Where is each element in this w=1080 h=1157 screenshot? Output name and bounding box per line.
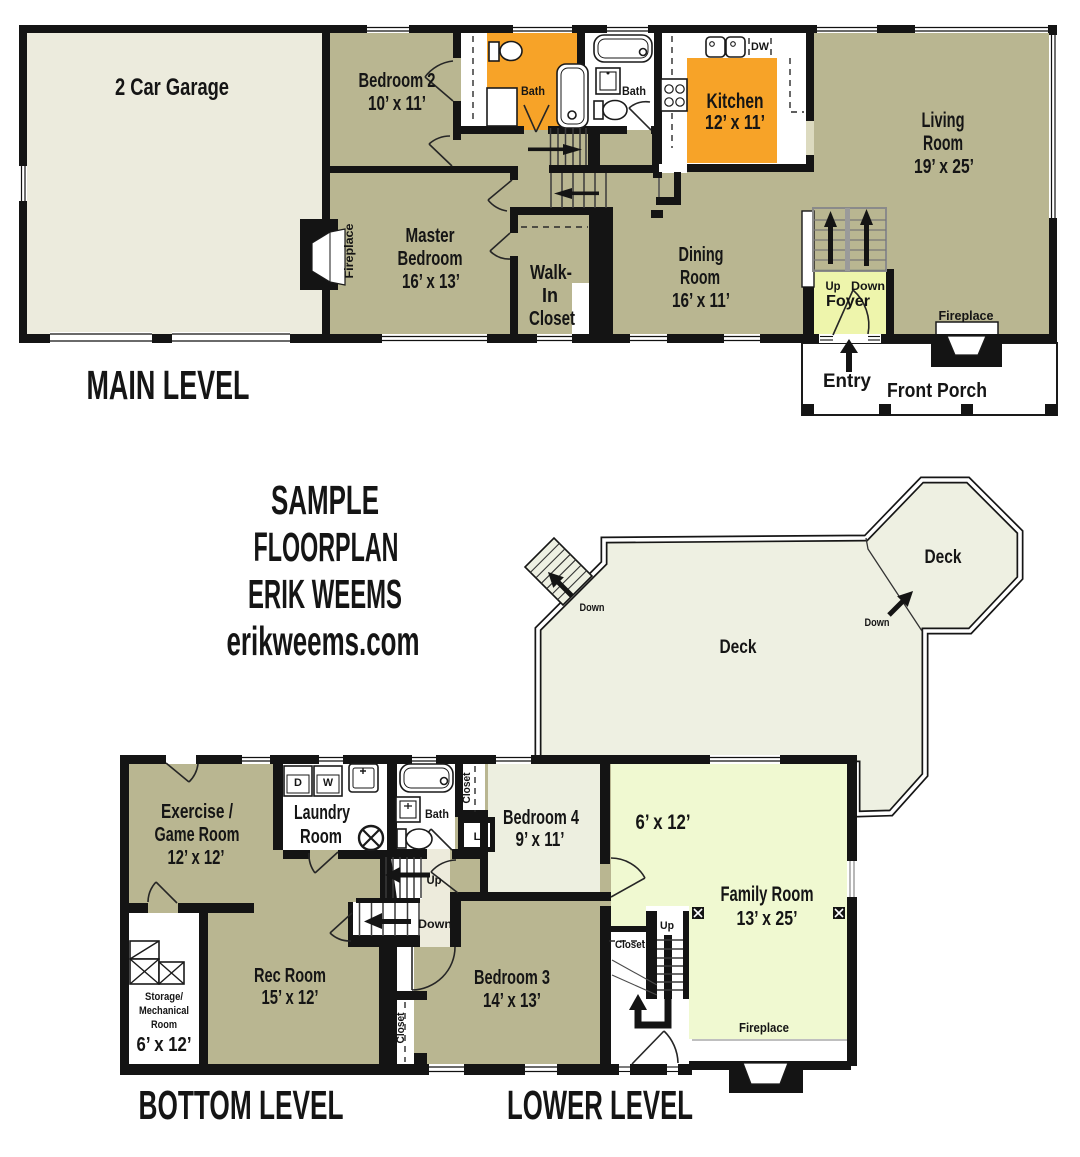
svg-text:Living: Living <box>922 109 965 132</box>
svg-text:Up: Up <box>826 279 841 293</box>
svg-text:LOWER LEVEL: LOWER LEVEL <box>507 1082 693 1128</box>
svg-text:9’ x 11’: 9’ x 11’ <box>516 829 565 851</box>
svg-text:Down: Down <box>580 602 605 614</box>
svg-text:15’ x 12’: 15’ x 12’ <box>262 987 319 1009</box>
svg-text:6’ x 12’: 6’ x 12’ <box>137 1034 192 1056</box>
svg-text:Down: Down <box>865 617 890 629</box>
svg-text:Bedroom 3: Bedroom 3 <box>474 967 550 989</box>
svg-text:Fireplace: Fireplace <box>342 223 356 278</box>
svg-text:Master: Master <box>406 225 455 247</box>
svg-text:Kitchen: Kitchen <box>707 90 764 113</box>
svg-text:Game Room: Game Room <box>155 824 240 846</box>
svg-text:Mechanical: Mechanical <box>139 1005 189 1017</box>
svg-text:Closet: Closet <box>461 772 473 803</box>
svg-text:Room: Room <box>680 267 720 289</box>
svg-text:13’ x 25’: 13’ x 25’ <box>737 908 798 930</box>
svg-text:Bath: Bath <box>425 807 449 821</box>
svg-text:Bedroom 4: Bedroom 4 <box>503 807 580 829</box>
svg-text:14’ x 13’: 14’ x 13’ <box>483 990 541 1012</box>
svg-text:Room: Room <box>300 826 342 848</box>
svg-text:Up: Up <box>660 920 674 932</box>
svg-text:L: L <box>474 831 481 843</box>
svg-text:erikweems.com: erikweems.com <box>227 618 420 664</box>
svg-text:Room: Room <box>923 132 963 155</box>
svg-text:12’ x 12’: 12’ x 12’ <box>168 847 225 869</box>
svg-text:16’ x 11’: 16’ x 11’ <box>672 290 730 312</box>
svg-text:Room: Room <box>151 1019 177 1031</box>
svg-text:6’ x 12’: 6’ x 12’ <box>636 811 691 834</box>
svg-text:Up: Up <box>427 873 442 887</box>
svg-text:BOTTOM LEVEL: BOTTOM LEVEL <box>139 1082 344 1128</box>
svg-text:Deck: Deck <box>925 547 962 568</box>
svg-text:12’ x 11’: 12’ x 11’ <box>705 112 765 134</box>
svg-text:Foyer: Foyer <box>826 293 870 310</box>
svg-text:Down: Down <box>851 279 885 293</box>
svg-text:Rec Room: Rec Room <box>254 965 326 987</box>
svg-text:Fireplace: Fireplace <box>939 308 994 323</box>
svg-text:Down: Down <box>418 917 452 931</box>
svg-text:Fireplace: Fireplace <box>739 1020 789 1035</box>
svg-text:SAMPLE: SAMPLE <box>271 477 379 523</box>
svg-text:W: W <box>323 777 334 789</box>
svg-text:19’ x 25’: 19’ x 25’ <box>914 156 974 178</box>
svg-text:Bath: Bath <box>521 84 545 98</box>
svg-text:Deck: Deck <box>720 637 757 658</box>
svg-text:Storage/: Storage/ <box>145 991 183 1003</box>
svg-text:Closet: Closet <box>395 1012 407 1043</box>
svg-text:Walk-: Walk- <box>530 262 572 284</box>
svg-text:10’ x 11’: 10’ x 11’ <box>368 93 426 115</box>
svg-text:Bedroom: Bedroom <box>398 248 463 270</box>
svg-text:2 Car Garage: 2 Car Garage <box>115 74 229 101</box>
svg-text:FLOORPLAN: FLOORPLAN <box>254 524 399 570</box>
svg-text:Family Room: Family Room <box>721 883 814 906</box>
svg-text:ERIK WEEMS: ERIK WEEMS <box>248 571 402 617</box>
svg-text:Front Porch: Front Porch <box>887 380 987 402</box>
svg-text:Entry: Entry <box>823 371 871 392</box>
svg-text:Bedroom 2: Bedroom 2 <box>359 70 436 92</box>
svg-text:Dining: Dining <box>679 244 724 266</box>
svg-text:Laundry: Laundry <box>294 802 351 824</box>
svg-text:Closet: Closet <box>529 308 575 330</box>
svg-text:16’ x 13’: 16’ x 13’ <box>402 271 460 293</box>
svg-text:Bath: Bath <box>622 84 646 98</box>
svg-text:Exercise /: Exercise / <box>161 801 233 823</box>
svg-text:DW: DW <box>751 41 770 53</box>
svg-text:D: D <box>294 777 302 789</box>
svg-text:Closet: Closet <box>615 939 645 951</box>
svg-text:MAIN LEVEL: MAIN LEVEL <box>87 362 250 408</box>
svg-text:In: In <box>542 285 558 307</box>
